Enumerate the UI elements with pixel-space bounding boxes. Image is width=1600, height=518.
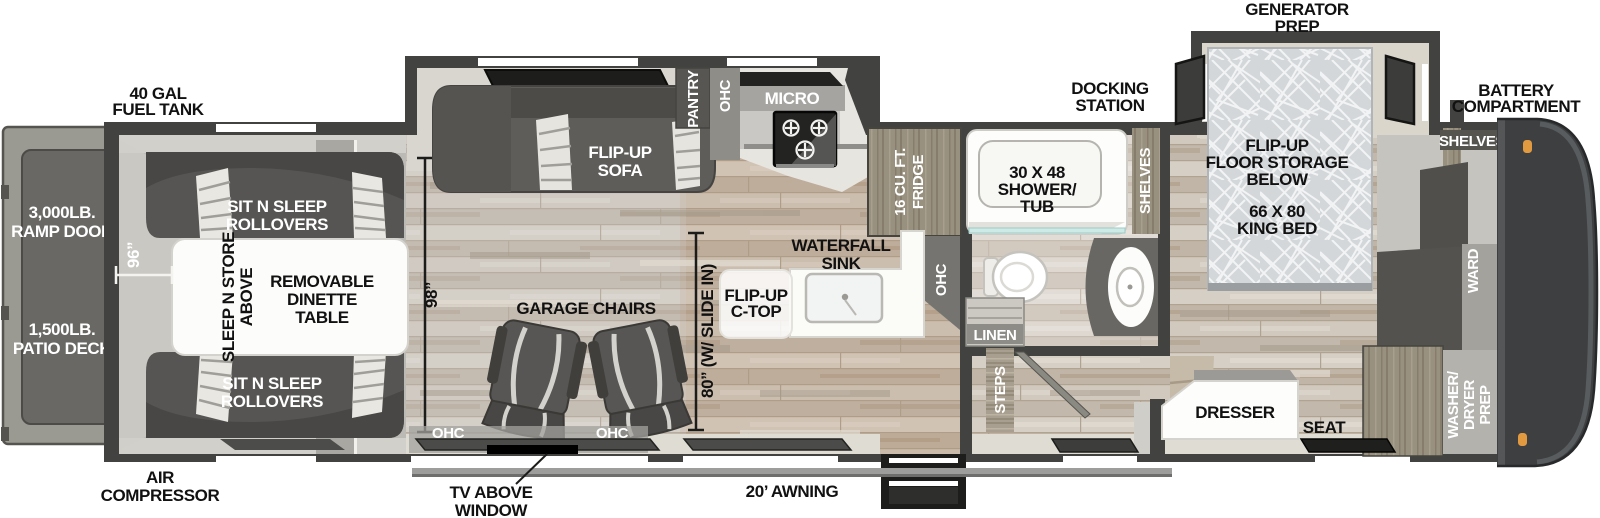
svg-text:80” (W/ SLIDE IN): 80” (W/ SLIDE IN) [698,264,717,398]
svg-text:REMOVABLE: REMOVABLE [270,272,374,291]
svg-text:ROLLOVERS: ROLLOVERS [226,215,328,234]
svg-text:SIT N SLEEP: SIT N SLEEP [222,374,322,393]
svg-text:FLIP-UP: FLIP-UP [588,143,651,162]
svg-text:SINK: SINK [821,254,861,273]
svg-text:WASHER/: WASHER/ [1445,370,1462,438]
svg-text:ROLLOVERS: ROLLOVERS [221,392,323,411]
svg-text:LINEN: LINEN [973,327,1016,344]
svg-text:WATERFALL: WATERFALL [791,236,890,255]
svg-text:DINETTE: DINETTE [287,290,357,309]
svg-text:16 CU. FT.: 16 CU. FT. [892,148,909,216]
svg-text:GARAGE CHAIRS: GARAGE CHAIRS [516,299,655,318]
svg-text:PANTRY: PANTRY [685,70,702,128]
svg-text:WINDOW: WINDOW [455,501,529,518]
svg-text:COMPARTMENT: COMPARTMENT [1452,97,1581,116]
svg-text:TV ABOVE: TV ABOVE [449,483,532,502]
svg-text:STATION: STATION [1075,96,1144,115]
svg-text:OHC: OHC [717,79,734,112]
svg-text:SEAT: SEAT [1303,418,1346,437]
svg-text:MICRO: MICRO [765,89,820,108]
svg-text:C-TOP: C-TOP [731,302,782,321]
svg-text:KING BED: KING BED [1237,219,1317,238]
svg-text:RAMP DOOR: RAMP DOOR [11,222,113,241]
svg-text:FUEL TANK: FUEL TANK [112,100,204,119]
svg-text:STEPS: STEPS [992,366,1009,414]
svg-text:DRESSER: DRESSER [1195,403,1275,422]
svg-text:OHC: OHC [432,425,465,442]
svg-text:TABLE: TABLE [295,308,348,327]
svg-text:WARD: WARD [1465,248,1482,293]
svg-text:OHC: OHC [933,263,950,296]
svg-text:BELOW: BELOW [1246,170,1309,189]
svg-text:3,000LB.: 3,000LB. [29,203,96,222]
svg-text:SLEEP N STORE: SLEEP N STORE [219,232,238,362]
svg-text:PREP: PREP [1275,17,1320,36]
svg-text:ABOVE: ABOVE [237,268,256,327]
svg-text:OHC: OHC [596,425,629,442]
svg-text:96”: 96” [124,242,143,268]
svg-text:TUB: TUB [1020,197,1054,216]
svg-text:PATIO DECK: PATIO DECK [13,339,112,358]
svg-text:20’ AWNING: 20’ AWNING [746,482,839,501]
svg-text:DRYER: DRYER [1461,379,1478,430]
svg-text:SHELVES: SHELVES [1439,133,1506,150]
svg-text:COMPRESSOR: COMPRESSOR [101,486,220,505]
svg-text:SIT N SLEEP: SIT N SLEEP [227,197,327,216]
svg-text:1,500LB.: 1,500LB. [29,320,96,339]
svg-text:SOFA: SOFA [598,161,643,180]
svg-text:AIR: AIR [146,468,174,487]
svg-text:SHELVES: SHELVES [1137,148,1154,215]
svg-text:PREP: PREP [1477,385,1494,425]
svg-text:98”: 98” [422,282,441,308]
svg-text:FRIDGE: FRIDGE [910,154,927,209]
